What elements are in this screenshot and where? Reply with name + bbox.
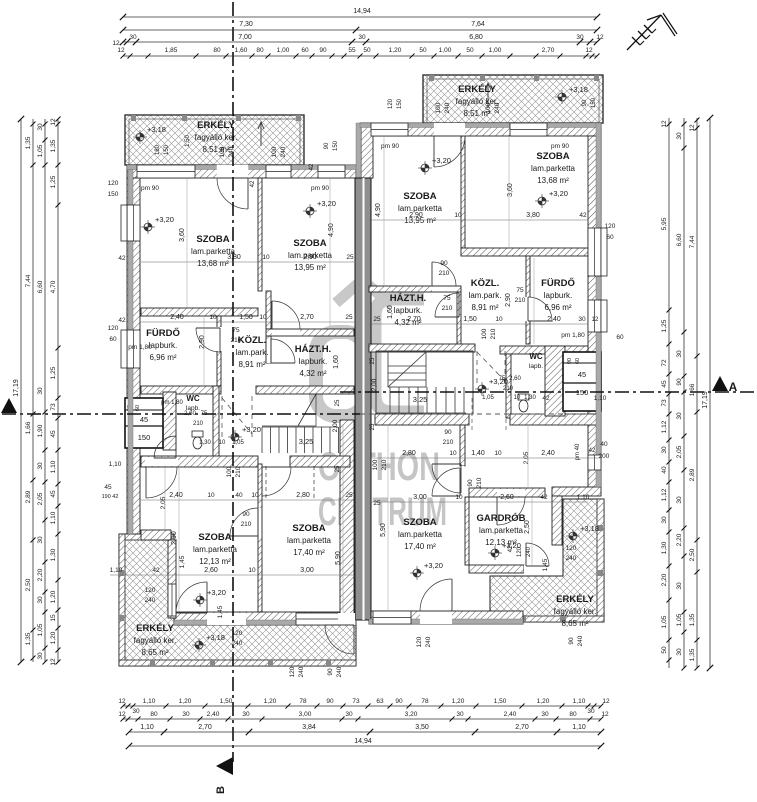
svg-text:fagyálló ker.: fagyálló ker. xyxy=(134,636,177,645)
svg-text:210: 210 xyxy=(476,477,483,488)
svg-text:10: 10 xyxy=(209,314,217,321)
svg-text:30: 30 xyxy=(676,132,683,140)
svg-text:150: 150 xyxy=(164,144,170,155)
svg-text:3,25: 3,25 xyxy=(299,437,314,446)
svg-text:45: 45 xyxy=(140,415,148,424)
svg-text:SZOBA: SZOBA xyxy=(403,191,436,202)
svg-text:30: 30 xyxy=(676,412,683,420)
svg-text:1,05: 1,05 xyxy=(482,395,494,401)
svg-text:1,60: 1,60 xyxy=(387,305,394,319)
svg-text:1,60: 1,60 xyxy=(235,47,248,54)
svg-text:2,05: 2,05 xyxy=(676,445,683,458)
svg-text:1,10: 1,10 xyxy=(577,494,590,501)
svg-text:10: 10 xyxy=(248,567,256,574)
svg-text:1,66: 1,66 xyxy=(25,421,32,434)
svg-text:30: 30 xyxy=(242,711,250,718)
svg-text:1,30: 1,30 xyxy=(50,548,57,561)
svg-text:240: 240 xyxy=(566,555,577,562)
svg-text:2,60: 2,60 xyxy=(500,494,514,501)
svg-text:240: 240 xyxy=(232,640,243,647)
svg-text:42: 42 xyxy=(579,212,587,219)
svg-text:3,50: 3,50 xyxy=(415,724,429,731)
svg-text:30: 30 xyxy=(676,350,683,358)
svg-text:2,40: 2,40 xyxy=(541,450,555,457)
svg-text:+3,18: +3,18 xyxy=(580,524,599,533)
svg-text:3,60: 3,60 xyxy=(507,183,514,197)
svg-text:30: 30 xyxy=(676,648,683,656)
svg-text:2,90: 2,90 xyxy=(505,293,512,307)
svg-text:13,68 m²: 13,68 m² xyxy=(537,176,569,185)
svg-text:6,60: 6,60 xyxy=(676,233,683,246)
svg-text:17,19: 17,19 xyxy=(702,391,709,409)
svg-text:3,60: 3,60 xyxy=(179,228,186,242)
svg-text:7,44: 7,44 xyxy=(25,274,32,287)
svg-text:2,50: 2,50 xyxy=(524,520,531,534)
svg-text:2,40: 2,40 xyxy=(504,711,517,718)
svg-text:pm 90: pm 90 xyxy=(551,143,569,150)
svg-text:190 42: 190 42 xyxy=(102,494,119,500)
svg-text:4,32 m²: 4,32 m² xyxy=(299,369,326,378)
svg-text:30: 30 xyxy=(456,711,464,718)
svg-text:73: 73 xyxy=(661,399,668,407)
svg-text:80: 80 xyxy=(150,711,158,718)
svg-text:240: 240 xyxy=(228,146,235,157)
svg-text:210: 210 xyxy=(443,439,454,446)
svg-text:30: 30 xyxy=(578,316,586,323)
svg-text:30: 30 xyxy=(587,708,595,715)
svg-text:40: 40 xyxy=(235,492,243,499)
svg-text:6,96 m²: 6,96 m² xyxy=(149,353,176,362)
svg-text:12: 12 xyxy=(112,40,120,47)
svg-text:2,80: 2,80 xyxy=(402,450,416,457)
svg-text:25: 25 xyxy=(370,423,376,430)
svg-text:lam.park.: lam.park. xyxy=(469,291,502,300)
svg-text:7,00: 7,00 xyxy=(238,34,252,41)
svg-text:240: 240 xyxy=(494,102,501,113)
svg-text:1,25: 1,25 xyxy=(661,319,668,332)
svg-text:25: 25 xyxy=(335,465,341,472)
svg-text:+3,20: +3,20 xyxy=(549,189,568,198)
svg-text:120: 120 xyxy=(108,325,119,332)
svg-text:50: 50 xyxy=(419,47,427,54)
svg-text:2,50: 2,50 xyxy=(689,548,696,561)
svg-text:4,70: 4,70 xyxy=(50,280,57,293)
svg-text:2,40: 2,40 xyxy=(170,314,184,321)
svg-text:1,10: 1,10 xyxy=(572,724,586,731)
svg-text:150: 150 xyxy=(333,140,339,151)
svg-text:SZOBA: SZOBA xyxy=(198,532,231,543)
svg-text:SZOBA: SZOBA xyxy=(292,523,325,534)
svg-text:90: 90 xyxy=(582,99,588,106)
svg-text:90: 90 xyxy=(676,378,683,386)
svg-text:78: 78 xyxy=(421,698,429,705)
svg-text:2,40: 2,40 xyxy=(547,316,561,323)
svg-text:210: 210 xyxy=(381,459,388,470)
svg-text:17,40 m²: 17,40 m² xyxy=(293,548,325,557)
svg-text:30: 30 xyxy=(37,387,44,395)
svg-text:1,45: 1,45 xyxy=(217,605,224,618)
svg-text:1,50: 1,50 xyxy=(220,698,233,705)
svg-text:ERKÉLY: ERKÉLY xyxy=(197,120,235,131)
svg-text:2,90: 2,90 xyxy=(171,531,178,545)
svg-text:lam.parketta: lam.parketta xyxy=(193,545,238,554)
svg-text:12: 12 xyxy=(585,47,593,54)
svg-text:210: 210 xyxy=(503,386,514,392)
svg-text:100: 100 xyxy=(481,328,488,339)
svg-text:3,25: 3,25 xyxy=(413,395,428,404)
svg-text:42: 42 xyxy=(508,545,514,552)
svg-text:2,40: 2,40 xyxy=(169,492,183,499)
svg-text:150: 150 xyxy=(138,433,151,442)
svg-text:45: 45 xyxy=(661,380,668,388)
svg-text:1,05: 1,05 xyxy=(37,623,44,636)
svg-text:150: 150 xyxy=(591,97,597,108)
svg-text:SZOBA: SZOBA xyxy=(293,238,326,249)
svg-text:60: 60 xyxy=(301,47,309,54)
svg-text:10: 10 xyxy=(495,316,503,323)
svg-text:1,45: 1,45 xyxy=(542,558,549,571)
svg-text:30: 30 xyxy=(676,496,683,504)
svg-text:2,05: 2,05 xyxy=(37,492,44,505)
svg-text:42: 42 xyxy=(309,163,315,170)
svg-text:1,35: 1,35 xyxy=(689,613,696,626)
svg-text:WC: WC xyxy=(186,394,200,403)
svg-text:50: 50 xyxy=(661,646,668,654)
svg-text:25: 25 xyxy=(345,492,353,499)
svg-text:+3,20: +3,20 xyxy=(242,425,261,434)
svg-text:1,25: 1,25 xyxy=(50,366,57,379)
svg-text:120: 120 xyxy=(289,666,296,677)
svg-text:240: 240 xyxy=(425,636,432,647)
svg-text:120: 120 xyxy=(232,630,243,637)
svg-text:100: 100 xyxy=(435,102,442,113)
svg-text:200: 200 xyxy=(599,453,610,460)
svg-text:1,05: 1,05 xyxy=(661,615,668,628)
svg-text:1,35: 1,35 xyxy=(25,136,32,149)
svg-text:12,13 m²: 12,13 m² xyxy=(199,557,231,566)
svg-text:1,10: 1,10 xyxy=(594,395,607,402)
svg-text:KÖZL.: KÖZL. xyxy=(471,278,500,289)
svg-text:A: A xyxy=(729,380,738,394)
svg-text:30: 30 xyxy=(345,711,353,718)
svg-text:pm 40: pm 40 xyxy=(575,443,581,460)
svg-text:90: 90 xyxy=(326,698,334,705)
svg-text:120: 120 xyxy=(517,546,523,557)
svg-text:12: 12 xyxy=(117,47,125,54)
svg-text:+3,18: +3,18 xyxy=(569,85,588,94)
svg-text:1,85: 1,85 xyxy=(165,47,178,54)
svg-text:75: 75 xyxy=(499,376,506,382)
svg-text:45: 45 xyxy=(50,430,57,438)
svg-text:80: 80 xyxy=(256,47,264,54)
svg-text:1,45: 1,45 xyxy=(179,555,186,568)
svg-text:1,50: 1,50 xyxy=(239,314,253,321)
svg-text:210: 210 xyxy=(439,270,450,277)
svg-text:1,90: 1,90 xyxy=(37,424,44,437)
svg-text:2,20: 2,20 xyxy=(661,573,668,586)
svg-text:KÖZL.: KÖZL. xyxy=(238,335,267,346)
svg-text:25: 25 xyxy=(370,357,376,364)
svg-text:WC: WC xyxy=(529,352,543,361)
svg-text:25: 25 xyxy=(335,399,341,406)
svg-text:1,10: 1,10 xyxy=(143,698,156,705)
svg-text:63: 63 xyxy=(376,698,384,705)
svg-text:120: 120 xyxy=(605,223,616,230)
svg-text:1,10: 1,10 xyxy=(50,460,57,473)
svg-text:240: 240 xyxy=(444,102,451,113)
svg-text:1,10: 1,10 xyxy=(50,511,57,524)
svg-text:2,00: 2,00 xyxy=(371,378,378,391)
svg-text:3,20: 3,20 xyxy=(405,711,418,718)
svg-text:3,00: 3,00 xyxy=(413,494,427,501)
svg-text:lam.parketta: lam.parketta xyxy=(531,164,576,173)
svg-text:100: 100 xyxy=(271,146,278,157)
svg-text:3,80: 3,80 xyxy=(526,212,540,219)
svg-text:45: 45 xyxy=(50,490,57,498)
svg-text:30: 30 xyxy=(37,596,44,604)
svg-text:25: 25 xyxy=(373,500,381,507)
svg-text:90: 90 xyxy=(467,479,474,487)
svg-text:10: 10 xyxy=(455,494,463,501)
svg-text:1,50: 1,50 xyxy=(185,135,191,147)
svg-text:1,35: 1,35 xyxy=(689,648,696,661)
svg-text:1,10: 1,10 xyxy=(110,567,123,574)
svg-text:120: 120 xyxy=(108,180,119,187)
svg-text:40: 40 xyxy=(661,466,668,474)
svg-text:25: 25 xyxy=(345,314,353,321)
svg-text:240: 240 xyxy=(298,666,305,677)
svg-text:120: 120 xyxy=(145,587,156,594)
svg-text:2,05: 2,05 xyxy=(160,496,167,509)
svg-text:+3,20: +3,20 xyxy=(424,561,443,570)
svg-text:4,90: 4,90 xyxy=(328,223,335,237)
svg-text:+3,20: +3,20 xyxy=(432,156,451,165)
svg-text:pm 1,80: pm 1,80 xyxy=(128,344,152,351)
svg-text:ERKÉLY: ERKÉLY xyxy=(136,623,174,634)
svg-text:55: 55 xyxy=(348,47,356,54)
svg-text:2,00: 2,00 xyxy=(332,419,339,432)
svg-text:6,96 m²: 6,96 m² xyxy=(544,303,571,312)
svg-text:45: 45 xyxy=(104,484,112,491)
svg-text:2,60: 2,60 xyxy=(509,376,521,382)
svg-text:2,89: 2,89 xyxy=(25,490,32,503)
svg-text:1,50: 1,50 xyxy=(494,698,507,705)
svg-text:1,30: 1,30 xyxy=(199,440,211,446)
svg-text:40: 40 xyxy=(600,441,608,448)
svg-text:2,70: 2,70 xyxy=(515,724,529,731)
svg-text:1,20: 1,20 xyxy=(264,698,277,705)
svg-text:1,20: 1,20 xyxy=(537,698,550,705)
svg-text:1,20: 1,20 xyxy=(50,631,57,644)
svg-text:+3,20: +3,20 xyxy=(317,199,336,208)
svg-text:10: 10 xyxy=(262,254,270,261)
svg-text:30: 30 xyxy=(37,462,44,470)
svg-text:lam.parketta: lam.parketta xyxy=(398,530,443,539)
svg-text:lapburk.: lapburk. xyxy=(299,357,327,366)
svg-text:100: 100 xyxy=(485,102,492,113)
svg-text:30: 30 xyxy=(37,652,44,660)
svg-text:+3,18: +3,18 xyxy=(206,633,225,642)
svg-text:42: 42 xyxy=(118,317,126,324)
svg-text:1,00: 1,00 xyxy=(489,47,502,54)
svg-text:120: 120 xyxy=(416,636,423,647)
svg-text:30: 30 xyxy=(676,582,683,590)
svg-text:7,64: 7,64 xyxy=(471,21,485,28)
svg-text:B: B xyxy=(215,786,227,794)
svg-text:120: 120 xyxy=(566,545,577,552)
svg-text:100: 100 xyxy=(219,146,226,157)
svg-text:14,94: 14,94 xyxy=(354,738,372,745)
svg-text:1,12: 1,12 xyxy=(661,420,668,433)
svg-text:30: 30 xyxy=(182,711,190,718)
svg-text:10: 10 xyxy=(454,212,462,219)
svg-text:1,40: 1,40 xyxy=(471,450,485,457)
svg-text:2,80: 2,80 xyxy=(296,492,310,499)
svg-text:ERKÉLY: ERKÉLY xyxy=(556,594,594,605)
svg-text:8,65 m²: 8,65 m² xyxy=(141,648,168,657)
svg-text:150: 150 xyxy=(397,98,403,109)
svg-text:8,91 m²: 8,91 m² xyxy=(471,303,498,312)
svg-text:1,20: 1,20 xyxy=(452,698,465,705)
svg-text:30: 30 xyxy=(358,34,366,41)
svg-text:2,60: 2,60 xyxy=(204,567,218,574)
svg-text:SZOBA: SZOBA xyxy=(196,234,229,245)
svg-text:8,65 m²: 8,65 m² xyxy=(561,619,588,628)
svg-text:90: 90 xyxy=(242,511,250,518)
svg-text:1,25: 1,25 xyxy=(50,175,57,188)
svg-text:30: 30 xyxy=(661,516,668,524)
svg-text:60: 60 xyxy=(616,334,624,341)
svg-text:2,40: 2,40 xyxy=(207,711,220,718)
svg-text:lapb.: lapb. xyxy=(529,363,543,370)
svg-text:lapburk.: lapburk. xyxy=(149,341,177,350)
svg-text:42: 42 xyxy=(540,494,548,501)
svg-text:6,60: 6,60 xyxy=(37,280,44,293)
svg-text:1,05: 1,05 xyxy=(232,440,244,446)
svg-text:210: 210 xyxy=(515,297,526,304)
svg-text:210: 210 xyxy=(193,421,204,427)
svg-text:210: 210 xyxy=(490,328,497,339)
svg-text:42: 42 xyxy=(542,395,550,402)
svg-text:42: 42 xyxy=(250,180,256,187)
svg-text:2,20: 2,20 xyxy=(676,533,683,546)
svg-text:240: 240 xyxy=(280,146,287,157)
svg-text:ERKÉLY: ERKÉLY xyxy=(458,84,496,95)
svg-text:30: 30 xyxy=(37,536,44,544)
svg-text:FÜRDŐ: FÜRDŐ xyxy=(146,327,180,339)
svg-text:4,90: 4,90 xyxy=(375,203,382,217)
svg-text:10: 10 xyxy=(449,450,457,457)
svg-text:75: 75 xyxy=(201,411,208,417)
svg-text:13,68 m²: 13,68 m² xyxy=(197,259,229,268)
svg-text:7,44: 7,44 xyxy=(689,235,696,248)
svg-text:30: 30 xyxy=(541,711,549,718)
svg-text:lapburk.: lapburk. xyxy=(544,291,572,300)
svg-text:pm 90: pm 90 xyxy=(311,185,329,192)
svg-text:90: 90 xyxy=(319,47,327,54)
svg-text:73: 73 xyxy=(50,403,57,411)
svg-text:42: 42 xyxy=(589,448,596,454)
svg-text:1,12: 1,12 xyxy=(661,488,668,501)
svg-text:GARDRÓB: GARDRÓB xyxy=(476,512,525,524)
svg-text:3,00: 3,00 xyxy=(299,711,312,718)
svg-text:180: 180 xyxy=(155,144,161,155)
svg-text:+3,20: +3,20 xyxy=(155,215,174,224)
svg-text:45: 45 xyxy=(578,370,586,379)
svg-text:lam.parketta: lam.parketta xyxy=(287,536,332,545)
svg-text:pm 90: pm 90 xyxy=(141,185,159,192)
svg-text:2,90: 2,90 xyxy=(303,254,317,261)
svg-text:210: 210 xyxy=(235,466,242,477)
svg-text:fagyálló ker.: fagyálló ker. xyxy=(195,133,238,142)
svg-text:240: 240 xyxy=(336,666,343,677)
svg-text:240: 240 xyxy=(526,546,532,557)
svg-text:12: 12 xyxy=(592,317,599,323)
svg-text:73: 73 xyxy=(352,698,360,705)
svg-text:pm 90: pm 90 xyxy=(381,143,399,150)
svg-text:25: 25 xyxy=(373,316,381,323)
svg-text:75: 75 xyxy=(516,287,524,294)
svg-text:2,50: 2,50 xyxy=(25,578,32,591)
svg-text:2,70: 2,70 xyxy=(542,47,555,54)
svg-text:5,95: 5,95 xyxy=(661,217,668,230)
svg-text:90: 90 xyxy=(395,698,403,705)
svg-text:lam.parketta: lam.parketta xyxy=(479,526,524,535)
svg-text:1,35: 1,35 xyxy=(50,139,57,152)
svg-text:10: 10 xyxy=(259,314,267,321)
svg-text:42: 42 xyxy=(118,255,126,262)
svg-text:1,10: 1,10 xyxy=(573,698,586,705)
svg-text:10: 10 xyxy=(207,492,215,499)
svg-text:2,90: 2,90 xyxy=(199,335,206,349)
svg-text:25: 25 xyxy=(346,254,354,261)
svg-text:100: 100 xyxy=(226,466,233,477)
svg-text:13,95 m²: 13,95 m² xyxy=(294,263,326,272)
svg-text:14,94: 14,94 xyxy=(353,8,371,15)
svg-text:15: 15 xyxy=(50,614,57,622)
svg-text:80: 80 xyxy=(213,47,221,54)
svg-text:2,70: 2,70 xyxy=(198,724,212,731)
svg-text:80: 80 xyxy=(569,711,577,718)
svg-text:30: 30 xyxy=(576,34,584,41)
svg-text:SZOBA: SZOBA xyxy=(536,151,569,162)
svg-text:1,00: 1,00 xyxy=(439,47,452,54)
svg-text:60: 60 xyxy=(109,336,117,343)
svg-text:150: 150 xyxy=(108,191,119,198)
svg-text:72: 72 xyxy=(661,359,668,367)
svg-text:1,20: 1,20 xyxy=(389,47,402,54)
svg-text:2,90: 2,90 xyxy=(409,212,423,219)
svg-text:50: 50 xyxy=(466,47,474,54)
svg-text:2,70: 2,70 xyxy=(407,316,421,323)
svg-text:lapburk.: lapburk. xyxy=(394,306,422,315)
svg-text:75: 75 xyxy=(232,327,240,334)
svg-text:120: 120 xyxy=(388,98,394,109)
svg-text:240: 240 xyxy=(577,635,584,646)
svg-text:10: 10 xyxy=(494,450,502,457)
svg-text:SZOBA: SZOBA xyxy=(403,517,436,528)
svg-text:90: 90 xyxy=(444,429,452,436)
svg-text:50: 50 xyxy=(363,47,371,54)
svg-text:3,80: 3,80 xyxy=(227,254,241,261)
svg-text:17,40 m²: 17,40 m² xyxy=(404,542,436,551)
svg-text:90: 90 xyxy=(327,668,334,676)
svg-text:12: 12 xyxy=(596,34,604,41)
svg-text:5,90: 5,90 xyxy=(380,523,387,537)
svg-text:10: 10 xyxy=(251,492,259,499)
svg-text:100: 100 xyxy=(372,459,379,470)
svg-text:60: 60 xyxy=(575,358,581,364)
